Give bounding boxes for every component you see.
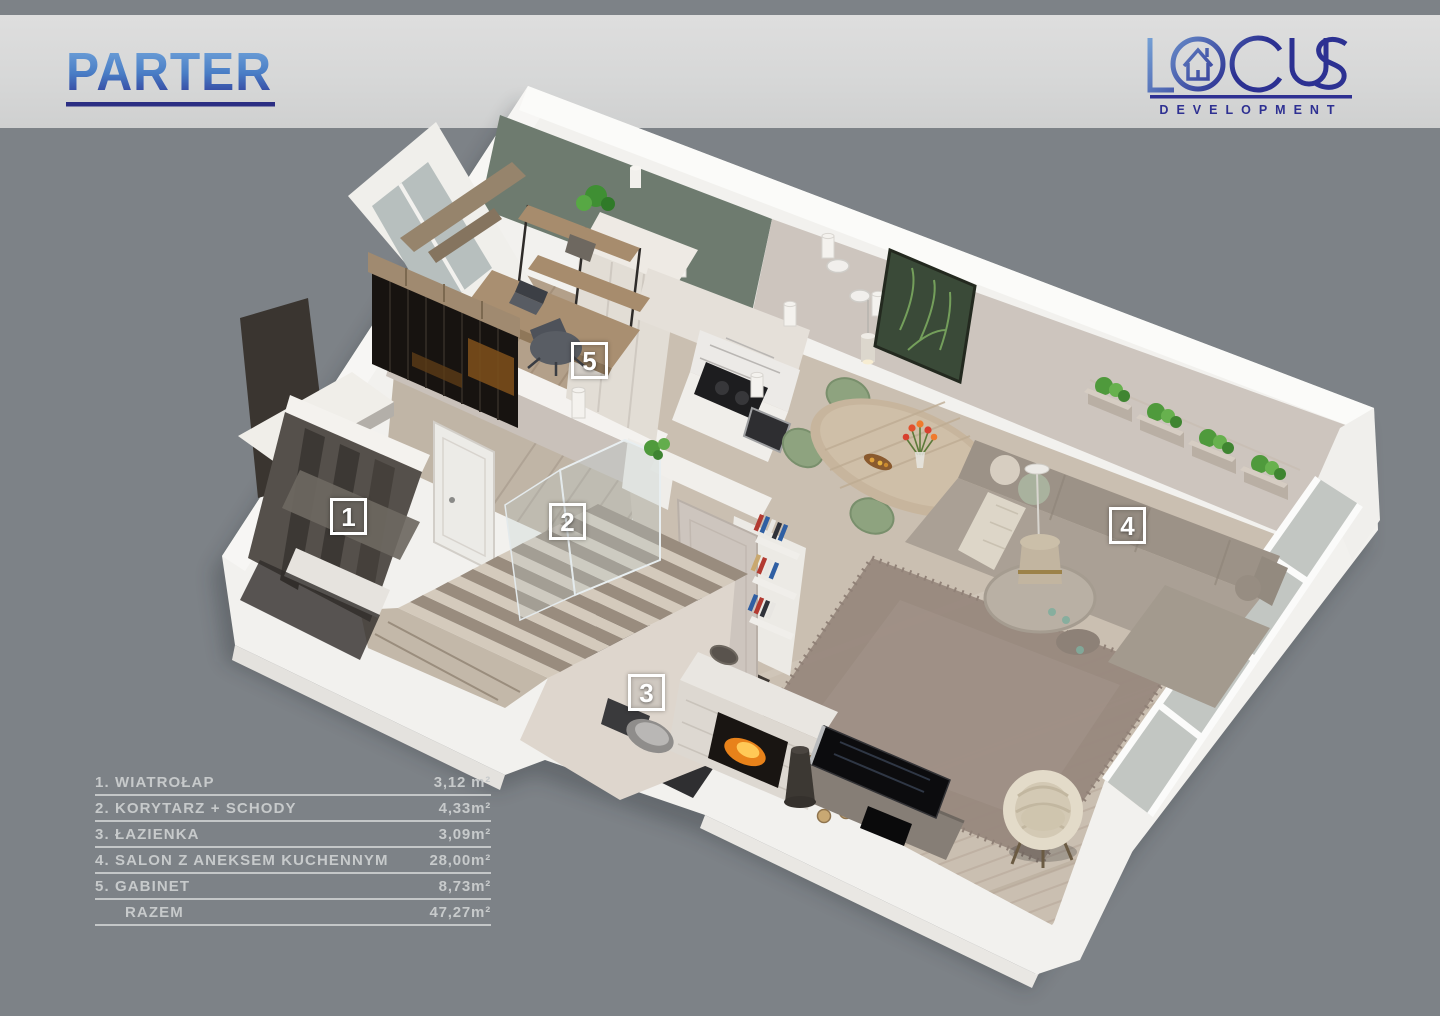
legend-room-label: 2. KORYTARZ + SCHODY <box>95 800 297 817</box>
legend-total-label: RAZEM <box>95 904 184 921</box>
pillow <box>1018 473 1050 505</box>
legend-room-label: 5. GABINET <box>95 878 190 895</box>
legend-room-area: 8,73m² <box>439 878 491 895</box>
room-marker-5: 5 <box>571 342 608 379</box>
legend-room-label: 1. WIATROŁAP <box>95 774 215 791</box>
floor-candles <box>572 387 585 418</box>
pillow <box>1235 575 1261 601</box>
room-marker-2: 2 <box>549 503 586 540</box>
legend-row-total: RAZEM 47,27m² <box>95 900 491 926</box>
room-marker-1: 1 <box>330 498 367 535</box>
pillow <box>990 455 1020 485</box>
armchair <box>1003 770 1083 868</box>
legend-room-label: 3. ŁAZIENKA <box>95 826 200 843</box>
legend-row: 4. SALON Z ANEKSEM KUCHENNYM 28,00m² <box>95 848 491 874</box>
legend-room-area: 28,00m² <box>430 852 491 869</box>
legend-total-area: 47,27m² <box>430 904 491 921</box>
legend-room-area: 4,33m² <box>439 800 491 817</box>
legend-room-label: 4. SALON Z ANEKSEM KUCHENNYM <box>95 852 389 869</box>
legend-row: 3. ŁAZIENKA 3,09m² <box>95 822 491 848</box>
legend-row: 1. WIATROŁAP 3,12 m² <box>95 770 491 796</box>
page: PARTER DEVELOPMENT <box>0 0 1440 1016</box>
legend: 1. WIATROŁAP 3,12 m² 2. KORYTARZ + SCHOD… <box>95 770 491 926</box>
legend-row: 5. GABINET 8,73m² <box>95 874 491 900</box>
legend-room-area: 3,09m² <box>439 826 491 843</box>
room-marker-3: 3 <box>628 674 665 711</box>
legend-row: 2. KORYTARZ + SCHODY 4,33m² <box>95 796 491 822</box>
legend-room-area: 3,12 m² <box>434 774 491 791</box>
room-marker-4: 4 <box>1109 507 1146 544</box>
